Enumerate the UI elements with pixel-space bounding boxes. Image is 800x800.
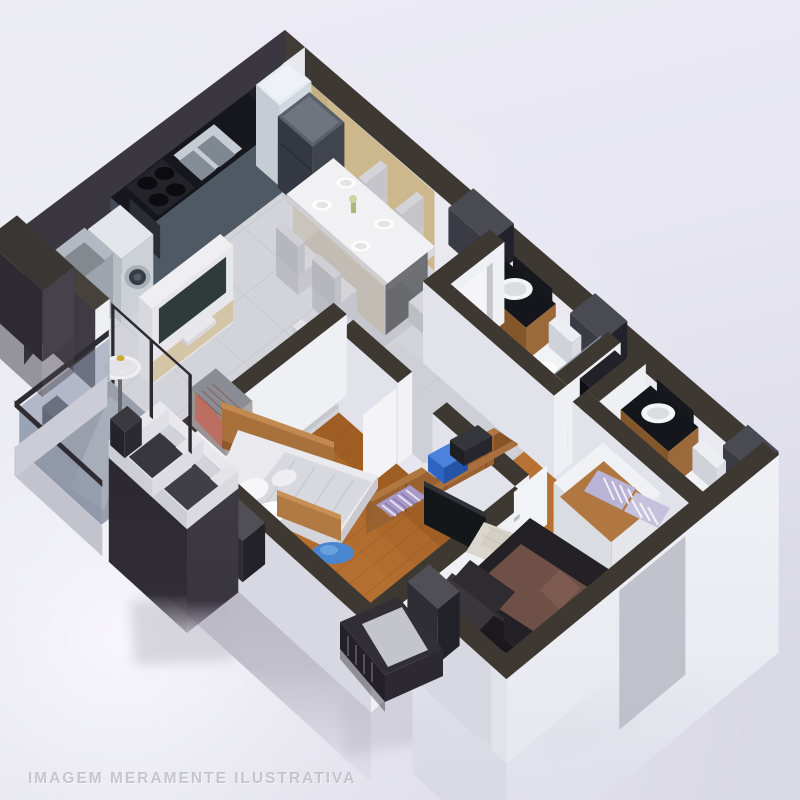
svg-text:IMAGEM MERAMENTE ILUSTRATIVA: IMAGEM MERAMENTE ILUSTRATIVA xyxy=(28,770,356,787)
